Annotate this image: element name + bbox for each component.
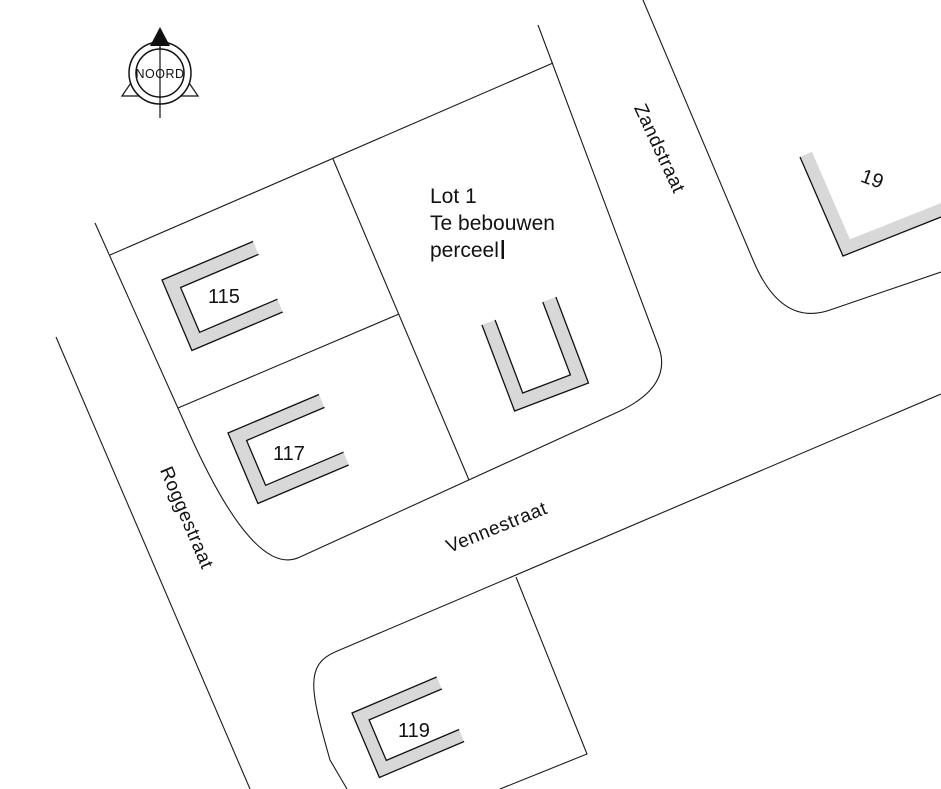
north-arrow-icon — [150, 27, 170, 46]
building-119-label: 119 — [398, 720, 430, 742]
site-plan-canvas: 115 117 119 19 Zandstr — [0, 0, 941, 789]
building-117-label: 117 — [273, 443, 305, 465]
lot1-annotation: Lot 1 Te bebouwen perceel — [430, 185, 555, 262]
building-19: 19 — [800, 152, 941, 256]
building-19-label: 19 — [858, 165, 886, 193]
lot1-title: Lot 1 — [430, 185, 477, 208]
lot1-subtitle-line2: perceel — [430, 239, 499, 262]
compass-label: NOORD — [135, 67, 184, 81]
lot1-subtitle-line1: Te bebouwen — [430, 212, 555, 235]
compass-rose: NOORD — [122, 27, 198, 118]
boundary-lines — [56, 0, 941, 789]
building-lot1-u-shape — [482, 297, 589, 411]
parcel-119-east-south-boundary — [500, 577, 587, 789]
building-115-label: 115 — [208, 286, 240, 308]
text-cursor — [502, 240, 505, 259]
cadastral-plan: 115 117 119 19 Zandstr — [0, 0, 941, 789]
building-lot1-walls — [482, 297, 589, 411]
street-label-zandstraat: Zandstraat — [629, 101, 689, 197]
building-117: 117 — [228, 395, 349, 504]
zandstraat-east-edge-and-vennestraat-north-edge-east — [643, 0, 941, 313]
building-115: 115 — [162, 242, 283, 351]
street-label-vennestraat: Vennestraat — [443, 498, 550, 558]
roggestraat-west-edge — [56, 337, 250, 789]
building-119: 119 — [352, 677, 464, 778]
buildings: 115 117 119 19 — [162, 152, 941, 778]
street-label-roggestraat: Roggestraat — [155, 464, 217, 573]
